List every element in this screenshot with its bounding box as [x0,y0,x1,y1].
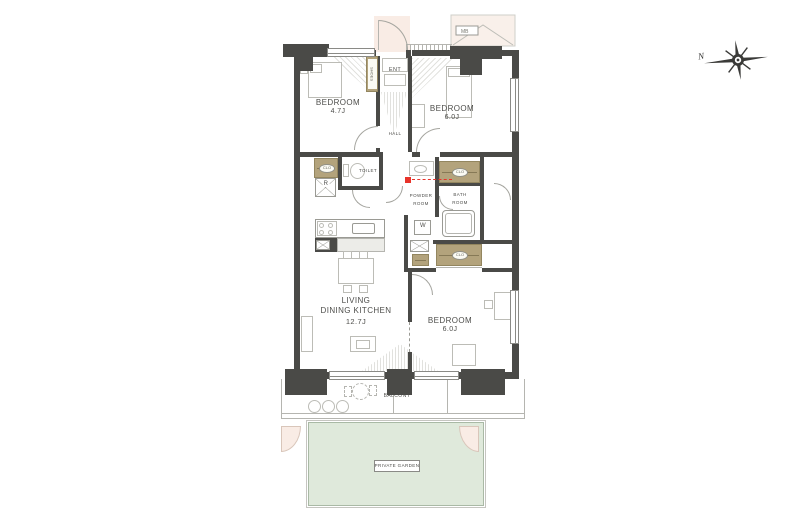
wall-toilet-left [338,157,342,189]
powder-room-line1: POWDER [410,193,433,198]
bedroom2-size: 6.0J [445,114,460,121]
wall-laundry-left [404,215,408,272]
hatch-hall [381,92,407,136]
washer-label: W [420,223,426,229]
balcony-edge-line-2 [281,418,525,419]
door-arc-bedroom2 [416,128,440,152]
bedroom1-size: 4.7J [331,108,346,115]
dining-chair-1 [343,251,352,259]
private-garden-label: PRIVATE GARDEN [375,463,420,468]
wall-bedroom3-top-right [482,268,514,272]
balcony-chair-1 [344,386,352,397]
pillar-bottom-left [285,369,327,395]
powder-room-line2: ROOM [413,201,429,206]
dining-table [338,258,374,284]
window-bedroom-bottom-balcony [414,371,459,380]
dining-chair-3 [343,285,352,293]
sliding-door-bedroom3 [409,322,412,352]
bedroom1-name: BEDROOM [316,98,360,107]
toilet-label: TOILET [359,168,377,173]
closet-bedroom3-doors [436,267,482,268]
pillar-top-right-stem [460,59,482,75]
door-arc-closet-right [494,183,511,200]
ldk-line2: DINING KITCHEN [321,306,392,315]
balcony-divider-2 [447,380,448,413]
meter-box-label: MB [461,29,469,35]
wall-bedroom2-bottom-right [440,152,514,157]
planter-2 [322,400,335,413]
pillar-bottom-middle [387,369,412,395]
pillar-top-left-stem [297,57,313,71]
stove-burner-1 [319,223,324,228]
kitchen-sink [352,223,375,234]
camera-marker-line [412,179,452,180]
desk-bedroom2 [411,104,425,128]
wall-bath-right [480,157,484,242]
desk-bedroom3 [494,292,511,320]
balcony-edge-line-1 [281,413,525,414]
ldk-line1: LIVING [342,296,371,305]
washbasin-sink [414,165,427,173]
kitchen-xbox [316,240,330,250]
balcony-side-right [524,379,525,419]
door-arc-bedroom3 [412,274,433,295]
dining-chair-2 [359,251,368,259]
laundry-xbox [410,240,429,252]
pillar-top-right [450,46,502,59]
planter-3 [336,400,349,413]
hall-label: HALL [389,131,402,136]
wall-toilet-right [379,157,383,189]
window-bedroom-top-left [327,48,375,57]
door-arc-ldk [386,186,403,203]
entrance-label: ENT [389,67,401,73]
window-bedroom-top-right [510,78,519,132]
bath-room-line2: ROOM [452,200,468,205]
dining-chair-4 [359,285,368,293]
floor-plan-canvas: MB SHOES ENT BED [0,0,800,531]
pillar-top-left [283,44,329,57]
compass-rose: N [698,32,774,84]
toilet-tank [343,164,349,177]
ldk-size: 12.7J [346,317,366,326]
bathtub-inner [445,213,472,234]
meter-box-structure: MB [450,12,516,48]
bedroom2-name: BEDROOM [430,104,474,113]
stove-burner-2 [328,223,333,228]
chair-bedroom3 [484,300,493,309]
low-table-inner [356,340,370,349]
balcony-side-left [281,379,282,419]
stove-burner-4 [328,230,333,235]
wall-hall-right [408,56,412,152]
bedroom3-name: BEDROOM [428,316,472,325]
storage-mini [412,254,429,266]
wall-left [294,50,300,376]
compass-north-label: N [698,51,706,62]
balcony-chair-2 [369,385,377,396]
planter-1 [308,400,321,413]
refrigerator-label: R [323,181,330,187]
kitchen-counter-front [337,238,385,252]
entrance-step-lower [384,74,406,86]
table-bedroom3 [452,344,476,366]
closet-kitchen-side-label: CLO [319,164,335,173]
balcony-label: BALCONY [384,393,411,399]
door-arc-toilet [352,190,370,208]
window-bedroom-bottom-right [510,290,519,344]
closet-bedroom3-label: CLO [452,251,468,260]
bath-room-line1: BATH [453,192,466,197]
entrance-door-leaf [378,20,379,50]
bedroom3-size: 6.0J [443,326,458,333]
wall-bath-closet [439,183,480,186]
window-ldk-balcony [329,371,385,380]
door-arc-bath [439,196,453,210]
closet-bath-side-label: CLO [452,168,468,177]
pillar-bottom-right [461,369,505,395]
balcony-table [352,383,369,400]
stove-burner-3 [319,230,324,235]
wall-bedroom2-bottom-left [412,152,420,157]
door-arc-bedroom1 [354,126,378,150]
garden-gate-left [281,426,301,452]
shoe-cabinet-label: SHOES [368,59,377,89]
camera-marker [405,177,411,183]
sofa [301,316,313,352]
